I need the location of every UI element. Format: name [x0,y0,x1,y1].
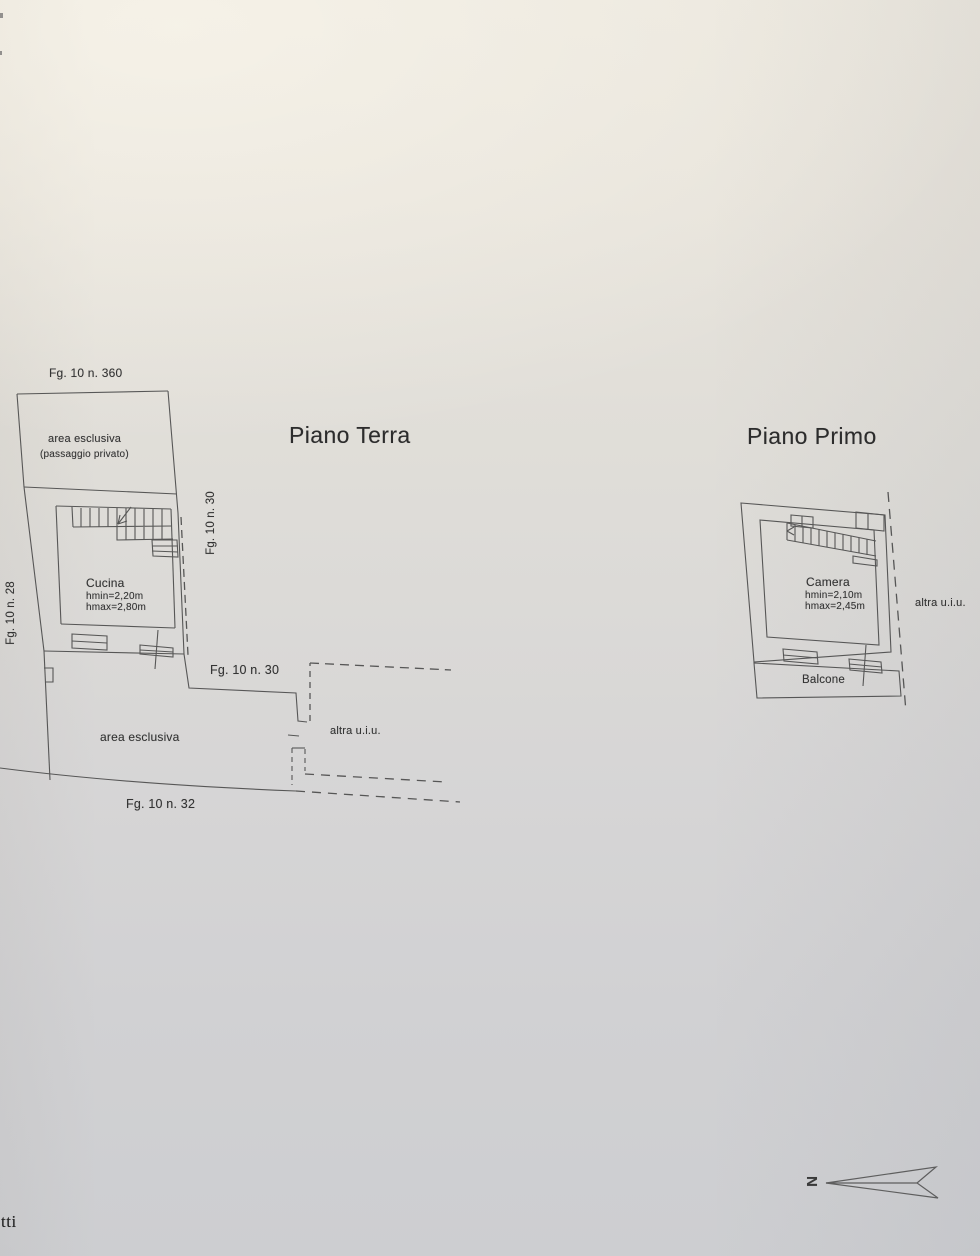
camera-height-min: hmin=2,10m [805,590,862,601]
ground-floor-title: Piano Terra [289,422,411,449]
room-name-cucina: Cucina [86,576,125,590]
scanned-floorplan-page: Fg. 10 n. 360 area esclusiva (passaggio … [0,0,980,1256]
cucina-height-min: hmin=2,20m [86,591,143,602]
room-name-camera: Camera [806,575,850,589]
north-letter: N [803,1176,820,1187]
boundary-label-fg-10-n-28-vertical: Fg. 10 n. 28 [5,578,17,648]
north-arrow-icon [826,1167,938,1198]
exclusive-area-bottom-label: area esclusiva [100,730,180,744]
adjacent-unit-label-ground: altra u.i.u. [330,725,381,737]
margin-text-fragment: tti [1,1212,17,1232]
camera-height-max: hmax=2,45m [805,601,865,612]
cucina-height-max: hmax=2,80m [86,602,146,613]
boundary-label-fg-10-n-30-vertical: Fg. 10 n. 30 [205,488,217,558]
first-floor-title: Piano Primo [747,423,877,450]
scan-speck [0,13,3,55]
boundary-label-fg-10-n-30-mid: Fg. 10 n. 30 [210,663,279,677]
boundary-label-fg-10-n-32: Fg. 10 n. 32 [126,797,195,811]
adjacent-unit-label-first: altra u.i.u. [915,597,966,609]
exclusive-area-top-label-line1: area esclusiva [48,433,121,445]
balcony-label: Balcone [802,674,845,686]
exclusive-area-top-label-line2: (passaggio privato) [40,449,129,460]
parcel-label-fg-10-n-360: Fg. 10 n. 360 [49,366,122,380]
floorplan-linework [0,0,980,1256]
